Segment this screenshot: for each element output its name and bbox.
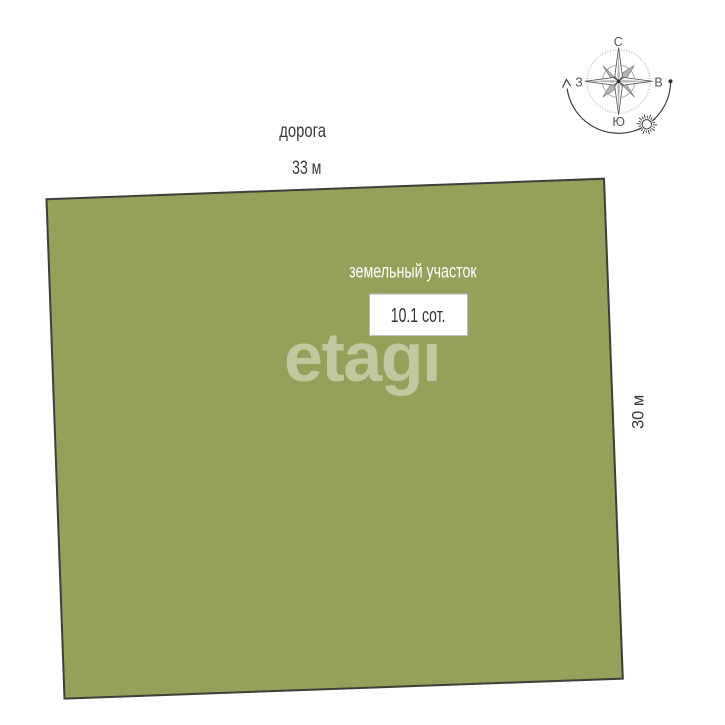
svg-text:В: В: [654, 75, 662, 89]
svg-text:33 м: 33 м: [292, 158, 322, 179]
svg-text:З: З: [575, 75, 583, 89]
svg-text:дорога: дорога: [279, 120, 326, 142]
svg-text:Ю: Ю: [612, 115, 625, 129]
svg-text:земельный участок: земельный участок: [349, 261, 477, 283]
svg-text:30 м: 30 м: [630, 395, 648, 429]
svg-text:10.1 сот.: 10.1 сот.: [391, 305, 446, 327]
svg-text:С: С: [614, 35, 623, 49]
